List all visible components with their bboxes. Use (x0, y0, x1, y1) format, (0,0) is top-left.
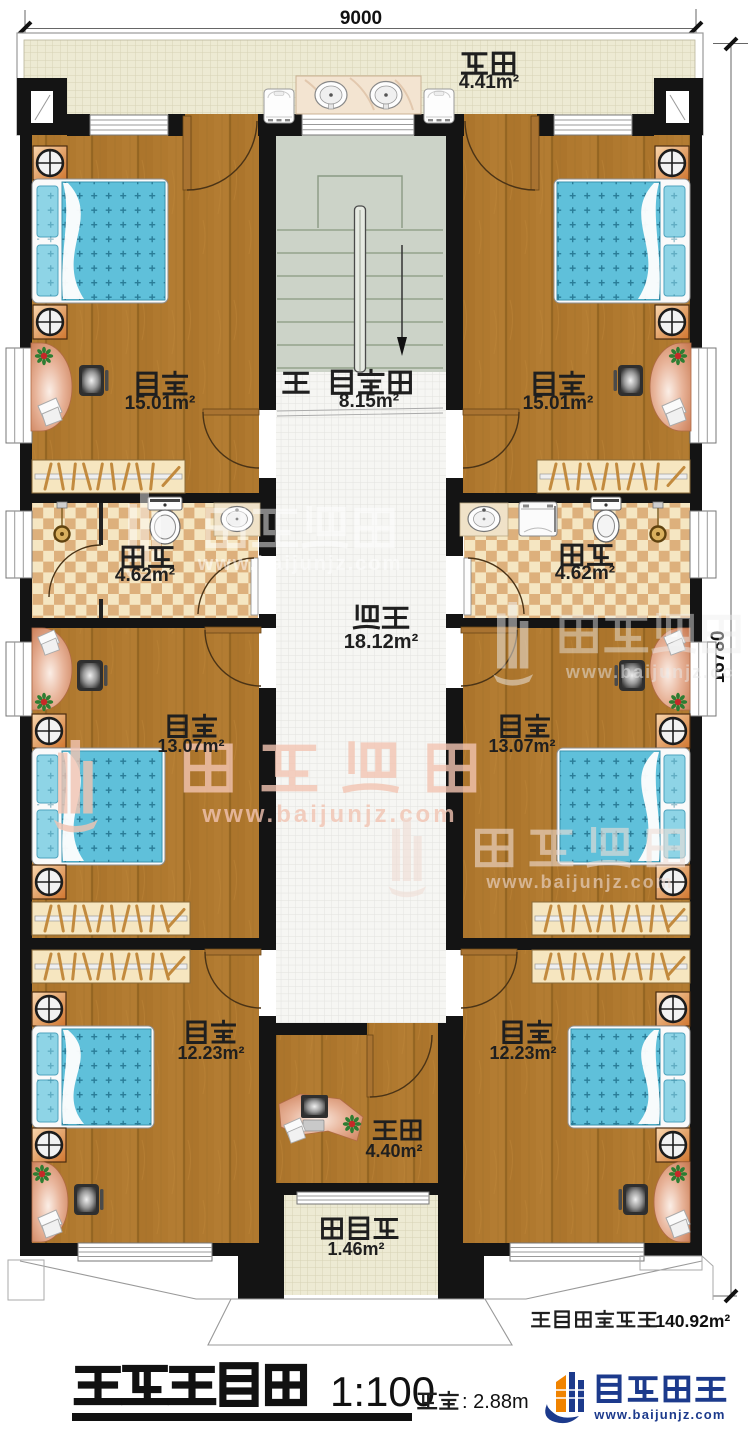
svg-text:12.23m²: 12.23m² (489, 1043, 556, 1063)
svg-text:4.41m²: 4.41m² (459, 72, 519, 93)
svg-text:15.01m²: 15.01m² (523, 393, 594, 414)
svg-text:4.62m²: 4.62m² (115, 565, 175, 586)
svg-text:13.07m²: 13.07m² (488, 736, 555, 756)
svg-text:www.baijunjz.com: www.baijunjz.com (593, 1407, 725, 1422)
svg-text:13.07m²: 13.07m² (157, 736, 224, 756)
svg-text:12.23m²: 12.23m² (177, 1043, 244, 1063)
svg-text:9000: 9000 (340, 8, 382, 29)
svg-text:8.15m²: 8.15m² (339, 391, 399, 412)
svg-text:4.62m²: 4.62m² (555, 563, 615, 584)
svg-text:: 140.92m²: : 140.92m² (646, 1311, 730, 1331)
svg-text:1.46m²: 1.46m² (327, 1239, 384, 1259)
svg-text:www.baijunjz.com: www.baijunjz.com (485, 872, 673, 892)
svg-text:4.40m²: 4.40m² (365, 1141, 422, 1161)
svg-text:www.baijunjz.com: www.baijunjz.com (201, 801, 457, 828)
svg-text:www.baijunjz.com: www.baijunjz.com (197, 553, 403, 575)
svg-text:: 2.88m: : 2.88m (462, 1391, 529, 1413)
svg-text:15.01m²: 15.01m² (125, 393, 196, 414)
svg-text:18.12m²: 18.12m² (344, 631, 419, 653)
svg-text:www.baijunjz.cc: www.baijunjz.cc (565, 662, 734, 682)
